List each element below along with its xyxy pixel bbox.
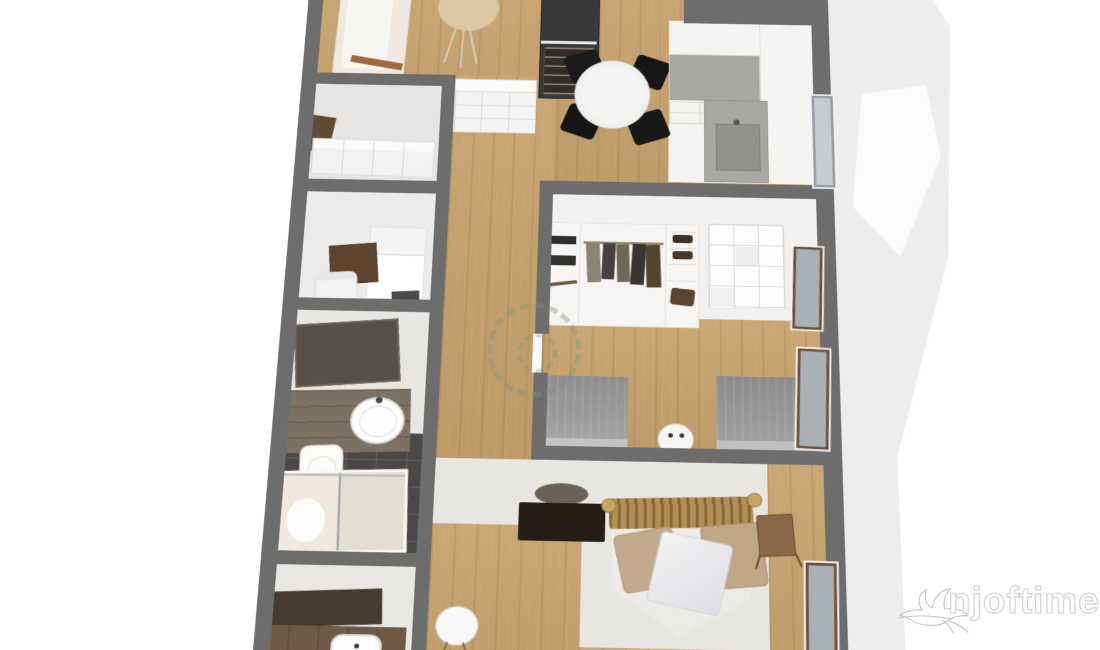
floor-plan-screenshot: njoftime.al <box>0 0 1100 650</box>
bathroom2-sink <box>328 634 382 650</box>
stool-item-dot <box>668 433 673 437</box>
daybed-group <box>609 491 770 650</box>
sink-basin-line <box>358 405 398 437</box>
chair-back <box>316 272 356 281</box>
hanging-garment <box>586 243 601 283</box>
boots-pair <box>670 288 696 307</box>
side-table <box>756 514 796 558</box>
brand-watermark: njoftime.al <box>896 578 1100 640</box>
shoes-dark <box>673 251 693 260</box>
bedroom-window-lower <box>796 348 829 450</box>
wall-study-top <box>307 179 451 194</box>
software-watermark-inner-circle <box>517 333 557 373</box>
storage-low-cabinet-row <box>309 138 435 178</box>
bathroom2-mirror <box>266 588 382 627</box>
sink-faucet <box>376 397 383 403</box>
software-watermark-circle <box>487 303 581 397</box>
living-room-window <box>806 562 838 650</box>
wardrobe-divider <box>665 225 666 327</box>
bedroom-window-upper <box>792 246 823 330</box>
folded-clothes-dark <box>548 255 576 265</box>
wall-top <box>684 0 814 25</box>
sideboard-compartments <box>454 91 536 133</box>
folded-clothes-dark <box>549 236 576 245</box>
hanging-coat-brown <box>645 245 661 288</box>
open-wardrobe <box>540 222 699 328</box>
exterior-balcony-area <box>827 0 978 511</box>
hanging-garment <box>601 243 616 279</box>
shoe-shelf <box>669 232 697 283</box>
brand-watermark-text: njoftime.al <box>948 580 1100 622</box>
round-dining-table <box>574 60 651 130</box>
wardrobe-divider <box>578 223 581 325</box>
counter-top <box>670 55 760 102</box>
belt-item <box>548 280 578 286</box>
bathroom-mirror <box>295 319 401 388</box>
kitchen-sink <box>716 124 761 171</box>
sink-dot <box>354 644 359 649</box>
shower-left-panel <box>277 475 338 552</box>
hutch-top-surface <box>541 41 597 45</box>
shoes-dark <box>673 235 693 243</box>
tv-stand <box>518 502 606 542</box>
apartment-3d-plan <box>219 0 939 650</box>
hanging-garment <box>616 244 630 282</box>
cubby-box <box>735 246 758 265</box>
kitchen-counter-vertical <box>704 100 769 183</box>
daybed-knob <box>747 493 763 508</box>
kitchen-faucet <box>733 119 739 124</box>
white-sideboard <box>453 79 537 134</box>
bedroom-cubby-shelf <box>708 223 786 309</box>
cubby-box <box>711 288 734 307</box>
hanging-garment <box>630 243 647 285</box>
study-desk <box>369 227 427 256</box>
shower-seat <box>286 498 326 542</box>
walk-in-shower <box>273 469 409 554</box>
stool-item-dot <box>680 433 685 437</box>
kitchen-window <box>812 96 836 188</box>
